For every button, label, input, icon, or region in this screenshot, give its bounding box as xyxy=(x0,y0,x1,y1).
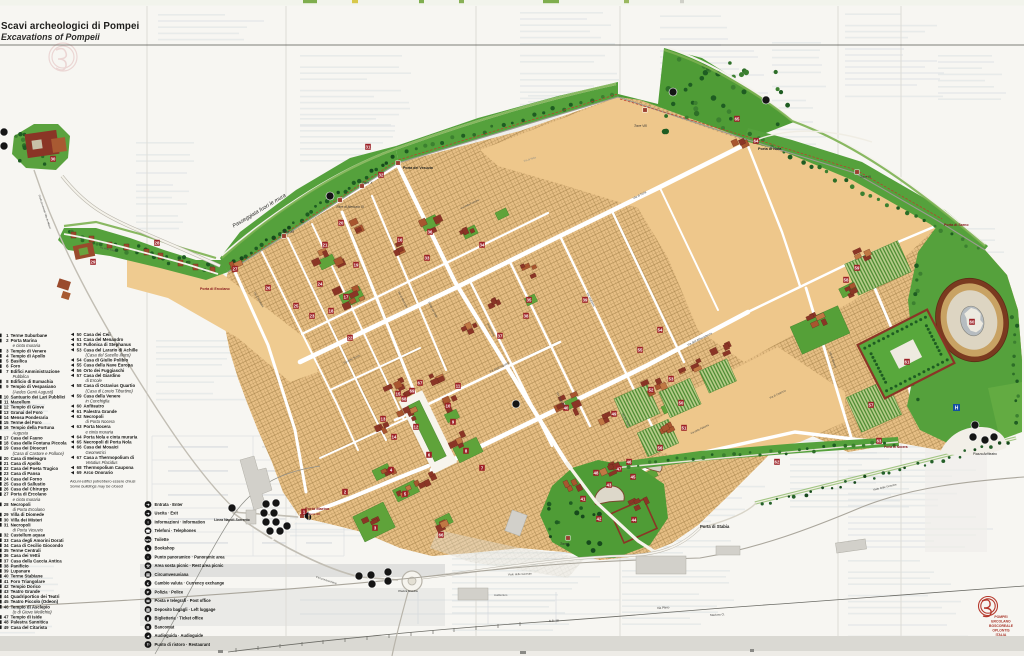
svg-text:Audioguida · Audioguide: Audioguida · Audioguide xyxy=(155,633,204,638)
svg-text:▮: ▮ xyxy=(147,616,149,621)
svg-text:59: 59 xyxy=(855,266,860,271)
svg-text:60: 60 xyxy=(970,320,975,325)
svg-text:Informazioni · Information: Informazioni · Information xyxy=(155,519,206,524)
svg-text:69: 69 xyxy=(410,389,415,394)
svg-text:51: 51 xyxy=(682,426,687,431)
svg-text:POMPEI: POMPEI xyxy=(994,615,1007,619)
svg-text:44: 44 xyxy=(632,518,637,523)
svg-text:52: 52 xyxy=(649,388,654,393)
svg-text:Porta Marina: Porta Marina xyxy=(305,506,330,511)
svg-text:46: 46 xyxy=(4,604,9,609)
svg-text:67: 67 xyxy=(77,455,82,460)
svg-text:30: 30 xyxy=(51,157,56,162)
svg-text:31: 31 xyxy=(4,522,9,527)
svg-text:41: 41 xyxy=(581,497,586,502)
svg-text:◄: ◄ xyxy=(146,633,150,638)
svg-text:18: 18 xyxy=(329,309,334,314)
svg-text:58: 58 xyxy=(77,383,82,388)
svg-text:Porta del Vesuvio: Porta del Vesuvio xyxy=(403,166,434,170)
svg-text:Deposito bagagli · Left luggag: Deposito bagagli · Left luggage xyxy=(155,607,217,612)
svg-text:21: 21 xyxy=(323,243,328,248)
svg-text:50: 50 xyxy=(679,401,684,406)
svg-text:64: 64 xyxy=(754,139,759,144)
svg-text:Stazione Ci.: Stazione Ci. xyxy=(710,612,725,617)
svg-text:Porta di Stabia: Porta di Stabia xyxy=(700,524,730,529)
svg-text:67: 67 xyxy=(418,381,423,386)
svg-text:57: 57 xyxy=(77,373,82,378)
svg-text:Arco Onorario: Arco Onorario xyxy=(84,470,114,475)
svg-text:Casa del Citarista: Casa del Citarista xyxy=(11,625,48,630)
svg-text:Posta e telegrafi · Post offic: Posta e telegrafi · Post office xyxy=(155,598,212,603)
svg-text:58: 58 xyxy=(844,278,849,283)
svg-text:69: 69 xyxy=(77,470,82,475)
svg-text:62: 62 xyxy=(77,414,82,419)
svg-text:15: 15 xyxy=(396,392,401,397)
svg-text:28: 28 xyxy=(4,502,9,507)
svg-text:63: 63 xyxy=(77,424,82,429)
svg-text:37: 37 xyxy=(498,334,503,339)
svg-text:43: 43 xyxy=(607,483,612,488)
svg-text:☎: ☎ xyxy=(146,528,151,533)
svg-text:22: 22 xyxy=(348,336,353,341)
svg-text:▤: ▤ xyxy=(146,572,150,577)
svg-text:56: 56 xyxy=(658,446,663,451)
svg-text:Piazza Esedra: Piazza Esedra xyxy=(398,589,418,593)
svg-text:Biglietteria · Ticket office: Biglietteria · Ticket office xyxy=(155,616,204,621)
svg-text:Auditorium: Auditorium xyxy=(494,593,508,597)
svg-text:i: i xyxy=(147,520,148,525)
svg-text:42: 42 xyxy=(597,517,602,522)
svg-text:66: 66 xyxy=(77,445,82,450)
svg-text:Bookshop: Bookshop xyxy=(155,546,176,551)
svg-text:49: 49 xyxy=(612,412,617,417)
svg-text:Telefoni · Telephones: Telefoni · Telephones xyxy=(155,528,197,533)
svg-text:66: 66 xyxy=(439,533,444,538)
svg-text:ITALIA: ITALIA xyxy=(996,633,1007,637)
svg-text:27: 27 xyxy=(233,267,238,272)
svg-text:S.S. 18: S.S. 18 xyxy=(549,618,559,623)
svg-text:34: 34 xyxy=(480,243,485,248)
svg-text:Torre XII: Torre XII xyxy=(282,230,294,234)
svg-text:46: 46 xyxy=(627,460,632,465)
svg-text:59: 59 xyxy=(77,393,82,398)
svg-text:Excavations of Pompeii: Excavations of Pompeii xyxy=(1,32,100,42)
svg-text:23: 23 xyxy=(310,314,315,319)
svg-text:Punto panoramico · Panoramic a: Punto panoramico · Panoramic area xyxy=(155,554,226,559)
svg-text:25: 25 xyxy=(294,304,299,309)
svg-text:Circumvesuviana: Circumvesuviana xyxy=(155,572,190,577)
svg-text:Porta di Sarno: Porta di Sarno xyxy=(944,223,969,227)
svg-text:53: 53 xyxy=(77,347,82,352)
svg-text:Toilette: Toilette xyxy=(155,537,170,542)
svg-text:26: 26 xyxy=(266,286,271,291)
svg-text:17: 17 xyxy=(344,295,349,300)
svg-text:19: 19 xyxy=(4,446,9,451)
svg-text:Uscita · Exit: Uscita · Exit xyxy=(155,511,179,516)
svg-text:28: 28 xyxy=(155,241,160,246)
svg-text:33: 33 xyxy=(425,256,430,261)
svg-text:61: 61 xyxy=(905,360,910,365)
svg-text:Torre VIII: Torre VIII xyxy=(634,124,647,128)
svg-text:12: 12 xyxy=(414,425,419,430)
svg-text:27: 27 xyxy=(4,492,9,497)
svg-text:19: 19 xyxy=(354,263,359,268)
svg-text:62: 62 xyxy=(775,460,780,465)
svg-text:20: 20 xyxy=(339,221,344,226)
svg-text:49: 49 xyxy=(4,625,9,630)
svg-text:24: 24 xyxy=(318,282,323,287)
svg-text:⚐: ⚐ xyxy=(146,642,150,647)
svg-text:Torre XII: Torre XII xyxy=(308,512,320,516)
svg-text:48: 48 xyxy=(594,471,599,476)
svg-text:16: 16 xyxy=(4,425,9,430)
svg-text:Cambio valuta · Currency excha: Cambio valuta · Currency exchange xyxy=(155,581,225,586)
svg-text:45: 45 xyxy=(631,475,636,480)
svg-text:35: 35 xyxy=(527,298,532,303)
svg-text:11: 11 xyxy=(456,384,461,389)
svg-text:▧: ▧ xyxy=(146,607,150,612)
svg-text:Piazza Anfiteatro: Piazza Anfiteatro xyxy=(973,452,997,456)
svg-text:47: 47 xyxy=(617,467,622,472)
svg-text:Via Plinio: Via Plinio xyxy=(657,605,670,610)
svg-text:31: 31 xyxy=(366,145,371,150)
svg-text:36: 36 xyxy=(428,230,433,235)
svg-text:54: 54 xyxy=(658,328,663,333)
svg-text:63: 63 xyxy=(877,439,882,444)
svg-text:53: 53 xyxy=(669,377,674,382)
svg-text:BOSCOREALE: BOSCOREALE xyxy=(989,624,1014,628)
svg-text:Linea Napoli-Sorrento: Linea Napoli-Sorrento xyxy=(214,518,249,522)
svg-text:29: 29 xyxy=(91,260,96,265)
svg-text:Porta di Nocera: Porta di Nocera xyxy=(884,445,908,449)
svg-text:10: 10 xyxy=(446,404,451,409)
svg-text:⚒: ⚒ xyxy=(146,563,150,568)
svg-text:65: 65 xyxy=(735,117,740,122)
svg-text:Porta di Nola: Porta di Nola xyxy=(758,147,782,151)
svg-text:B: B xyxy=(147,625,150,630)
svg-text:Punto di ristoro · Restaurant: Punto di ristoro · Restaurant xyxy=(155,642,211,647)
svg-text:Torre X: Torre X xyxy=(362,181,373,185)
svg-text:Entrata · Enter: Entrata · Enter xyxy=(155,502,184,507)
svg-text:ERCOLANO: ERCOLANO xyxy=(991,620,1011,624)
svg-text:Bancomat: Bancomat xyxy=(155,624,175,629)
svg-text:55: 55 xyxy=(638,348,643,353)
svg-text:68: 68 xyxy=(402,397,407,402)
svg-text:wc: wc xyxy=(144,537,151,542)
svg-text:P: P xyxy=(147,590,150,595)
svg-text:Polizia · Police: Polizia · Police xyxy=(155,589,184,594)
svg-text:38: 38 xyxy=(524,314,529,319)
svg-text:14: 14 xyxy=(392,435,397,440)
svg-text:Scavi archeologici di Pompei: Scavi archeologici di Pompei xyxy=(1,21,140,32)
svg-text:Torre di Mercurio XI: Torre di Mercurio XI xyxy=(336,205,364,209)
svg-text:32: 32 xyxy=(379,173,384,178)
svg-text:39: 39 xyxy=(583,298,588,303)
svg-text:16: 16 xyxy=(398,238,403,243)
svg-text:Some buildings may be closed: Some buildings may be closed xyxy=(70,483,124,488)
svg-text:57: 57 xyxy=(869,403,874,408)
svg-text:Porta di Ercolano: Porta di Ercolano xyxy=(200,287,231,291)
svg-text:H: H xyxy=(955,406,959,412)
svg-text:Torre III: Torre III xyxy=(860,175,871,179)
svg-text:Torre I: Torre I xyxy=(560,542,569,546)
svg-text:Area sosta picnic · Rest area: Area sosta picnic · Rest area picnic xyxy=(155,563,225,568)
svg-text:13: 13 xyxy=(381,417,386,422)
svg-text:OPLONTIS: OPLONTIS xyxy=(992,629,1010,633)
